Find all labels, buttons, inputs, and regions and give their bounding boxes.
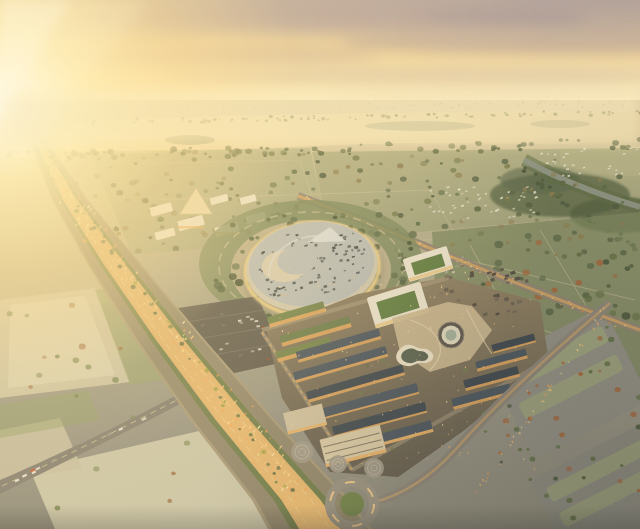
atmosphere-overlay: [0, 0, 640, 529]
aerial-rendering: [0, 0, 640, 529]
scene-svg: [0, 0, 640, 529]
vignette: [0, 0, 640, 529]
